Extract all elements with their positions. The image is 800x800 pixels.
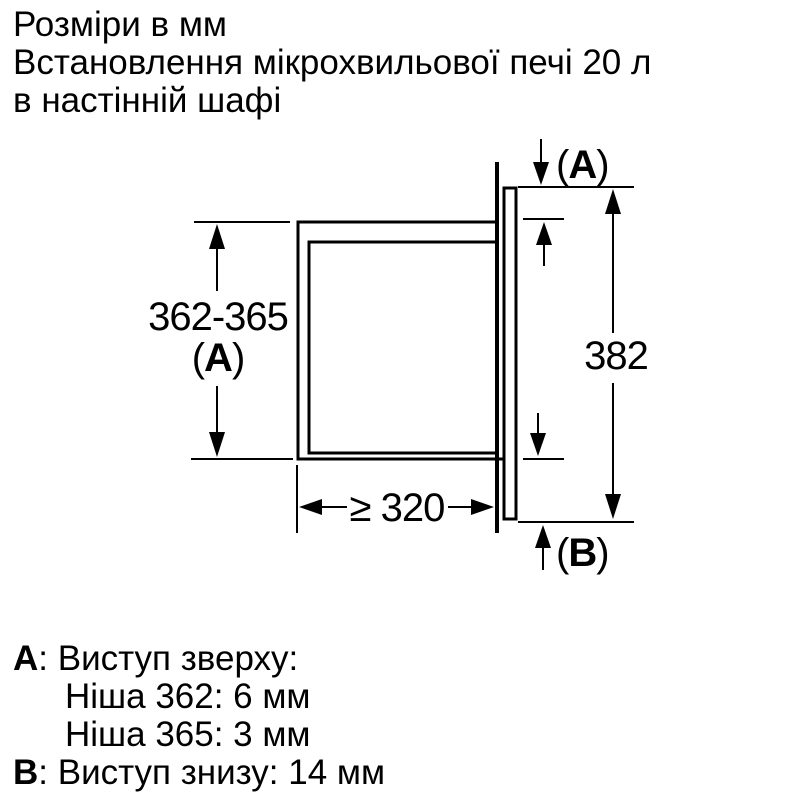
legend-text: Ніша 362: 6 мм bbox=[65, 677, 310, 716]
ref-letter: A bbox=[568, 143, 596, 187]
bottom-protrusion-label: (B) bbox=[556, 531, 609, 575]
legend-line-bottom-protrusion: B: Виступ знизу: 14 мм bbox=[13, 754, 385, 792]
arrowhead-down bbox=[533, 162, 549, 185]
cabinet-structure bbox=[298, 162, 516, 533]
page: Розміри в мм Встановлення мікрохвильової… bbox=[0, 0, 800, 800]
top-protrusion-label: (A) bbox=[556, 143, 609, 187]
legend-text: Ніша 365: 3 мм bbox=[65, 715, 310, 754]
arrowhead-left bbox=[299, 499, 322, 515]
arrowhead-up bbox=[209, 224, 225, 249]
cabinet-outline bbox=[298, 222, 504, 459]
arrowhead-up bbox=[605, 189, 621, 214]
niche-depth-label: ≥ 320 bbox=[350, 486, 445, 530]
legend-key: B bbox=[13, 753, 38, 792]
niche-height-label: 362-365 bbox=[148, 295, 288, 339]
paren-close: ) bbox=[596, 143, 608, 187]
microwave-front-panel bbox=[504, 188, 516, 519]
dim-niche-depth: ≥ 320 bbox=[297, 465, 494, 533]
niche-height-ref-label: (A) bbox=[192, 336, 245, 380]
legend-text: : Виступ знизу: 14 мм bbox=[38, 753, 385, 792]
legend-line-niche-365: Ніша 365: 3 мм bbox=[13, 716, 385, 754]
appliance-height-label: 382 bbox=[584, 334, 648, 378]
ref-letter: B bbox=[568, 531, 596, 575]
niche-inner-outline bbox=[309, 242, 496, 453]
legend-key: A bbox=[13, 639, 38, 678]
legend-text: : Виступ зверху: bbox=[38, 639, 298, 678]
dim-niche-height: 362-365 (A) bbox=[148, 222, 293, 459]
arrowhead-down bbox=[605, 494, 621, 519]
arrowhead-right bbox=[471, 499, 494, 515]
paren-close: ) bbox=[232, 336, 244, 380]
legend-line-niche-362: Ніша 362: 6 мм bbox=[13, 678, 385, 716]
arrowhead-up bbox=[535, 525, 551, 548]
dim-appliance-height: 382 bbox=[584, 189, 648, 519]
ref-letter: A bbox=[204, 336, 232, 380]
arrowhead-down bbox=[530, 433, 546, 456]
paren-close: ) bbox=[596, 531, 608, 575]
arrowhead-down bbox=[209, 432, 225, 457]
arrowhead-up bbox=[536, 222, 552, 245]
legend-line-top-protrusion: A: Виступ зверху: bbox=[13, 640, 385, 678]
legend: A: Виступ зверху: Ніша 362: 6 мм Ніша 36… bbox=[13, 640, 385, 792]
